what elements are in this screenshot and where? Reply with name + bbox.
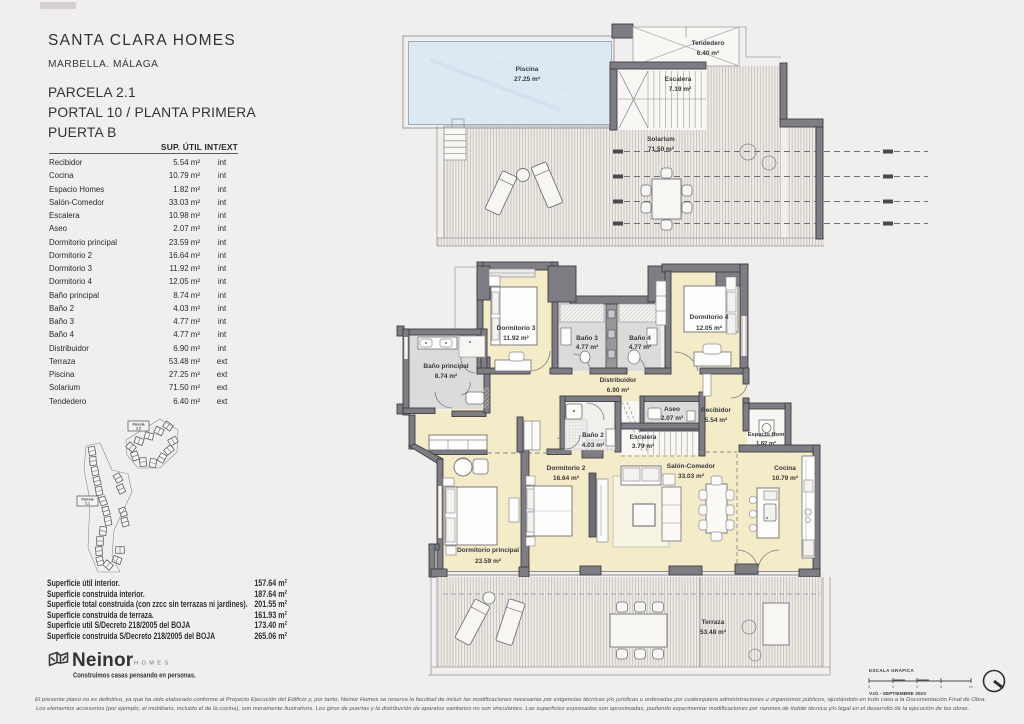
svg-text:11.92 m²: 11.92 m² (503, 335, 529, 342)
svg-text:16.64 m²: 16.64 m² (553, 475, 580, 482)
svg-text:2.3: 2.3 (136, 427, 141, 431)
svg-text:3.79 m²: 3.79 m² (632, 443, 655, 450)
svg-text:Terraza: Terraza (702, 619, 725, 626)
svg-text:V.01 - SEPTIEMBRE 2023: V.01 - SEPTIEMBRE 2023 (869, 691, 926, 697)
svg-text:2.07 m²: 2.07 m² (661, 415, 684, 422)
svg-text:5: 5 (940, 685, 942, 689)
svg-text:53.48 m²: 53.48 m² (700, 629, 727, 636)
svg-text:ESCALA GRÁFICA: ESCALA GRÁFICA (869, 667, 914, 673)
svg-text:Espacio Hom: Espacio Hom (748, 432, 785, 438)
svg-text:m: m (970, 685, 973, 689)
svg-text:6.90 m²: 6.90 m² (607, 387, 630, 394)
svg-text:Piscina: Piscina (516, 66, 539, 73)
svg-text:Recibidor: Recibidor (701, 407, 731, 414)
svg-text:10.79 m²: 10.79 m² (772, 475, 799, 482)
svg-text:4.03 m²: 4.03 m² (582, 442, 605, 449)
svg-text:1.82 m²: 1.82 m² (756, 440, 776, 447)
svg-text:1: 1 (892, 685, 894, 689)
svg-text:Cocina: Cocina (774, 465, 796, 472)
svg-text:0: 0 (868, 685, 870, 689)
svg-text:Salón-Comedor: Salón-Comedor (667, 463, 716, 470)
svg-text:4.77 m²: 4.77 m² (576, 344, 599, 351)
svg-text:Solarium: Solarium (647, 136, 675, 143)
svg-text:27.25 m²: 27.25 m² (514, 76, 541, 83)
svg-text:Baño 2: Baño 2 (582, 432, 604, 439)
svg-text:8.74 m²: 8.74 m² (435, 373, 458, 380)
svg-text:Baño 4: Baño 4 (629, 335, 651, 342)
svg-text:Distribuidor: Distribuidor (600, 377, 637, 384)
svg-text:33.03 m²: 33.03 m² (678, 473, 705, 480)
svg-text:Dormitorio 4: Dormitorio 4 (690, 314, 729, 321)
svg-text:Dormitorio 2: Dormitorio 2 (547, 465, 586, 472)
svg-text:23.59 m²: 23.59 m² (475, 558, 502, 565)
svg-text:12.05 m²: 12.05 m² (696, 325, 723, 332)
svg-text:Tendedero: Tendedero (692, 40, 725, 47)
svg-text:71.50 m²: 71.50 m² (648, 146, 675, 153)
svg-text:Dormitorio principal: Dormitorio principal (457, 547, 519, 554)
svg-text:Dormitorio 3: Dormitorio 3 (497, 325, 536, 332)
svg-text:Baño 3: Baño 3 (576, 335, 598, 342)
svg-text:2.1: 2.1 (85, 502, 90, 506)
svg-text:Baño principal: Baño principal (423, 363, 468, 370)
svg-text:Escalera: Escalera (630, 434, 657, 441)
svg-text:Aseo: Aseo (664, 406, 680, 413)
svg-text:Escalera: Escalera (665, 76, 692, 83)
svg-text:4.77 m²: 4.77 m² (629, 344, 652, 351)
svg-text:6.40 m²: 6.40 m² (697, 50, 720, 57)
svg-text:7.19 m²: 7.19 m² (669, 86, 692, 93)
svg-text:2: 2 (916, 685, 918, 689)
svg-text:5.54 m²: 5.54 m² (705, 417, 728, 424)
